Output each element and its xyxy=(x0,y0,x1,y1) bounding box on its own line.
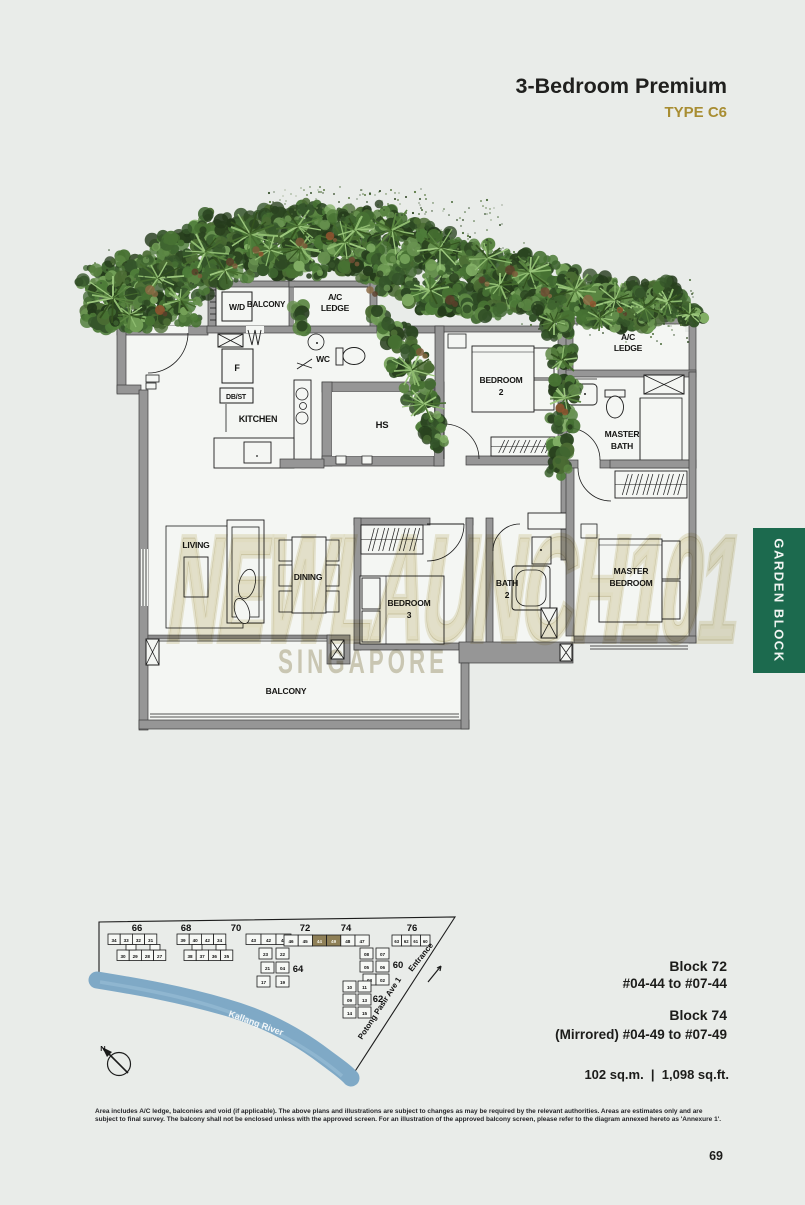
svg-text:48: 48 xyxy=(345,939,351,944)
svg-text:BALCONY: BALCONY xyxy=(266,686,307,696)
svg-text:MASTER: MASTER xyxy=(605,429,640,439)
svg-text:47: 47 xyxy=(359,939,365,944)
svg-text:27: 27 xyxy=(157,954,163,959)
svg-text:22: 22 xyxy=(280,952,286,957)
svg-text:WC: WC xyxy=(316,354,330,364)
svg-text:62: 62 xyxy=(404,939,409,944)
svg-text:05: 05 xyxy=(364,965,370,970)
svg-text:SINGAPORE: SINGAPORE xyxy=(278,643,448,681)
svg-text:36: 36 xyxy=(212,954,218,959)
svg-text:66: 66 xyxy=(132,923,143,934)
svg-text:08: 08 xyxy=(364,952,370,957)
svg-text:35: 35 xyxy=(224,954,230,959)
svg-text:40: 40 xyxy=(193,938,199,943)
svg-text:04: 04 xyxy=(280,966,286,971)
svg-text:07: 07 xyxy=(380,952,386,957)
svg-text:42: 42 xyxy=(266,938,272,943)
svg-text:BALCONY: BALCONY xyxy=(247,300,286,309)
svg-text:19: 19 xyxy=(280,980,286,985)
svg-text:74: 74 xyxy=(341,923,352,934)
svg-text:KITCHEN: KITCHEN xyxy=(239,414,278,424)
svg-text:BEDROOM: BEDROOM xyxy=(480,375,523,385)
svg-text:LEDGE: LEDGE xyxy=(321,303,350,313)
svg-text:N: N xyxy=(100,1044,105,1053)
svg-text:23: 23 xyxy=(263,952,269,957)
svg-text:HS: HS xyxy=(376,420,389,431)
svg-text:34: 34 xyxy=(217,938,223,943)
svg-text:30: 30 xyxy=(120,954,126,959)
svg-text:38: 38 xyxy=(187,954,193,959)
svg-text:63: 63 xyxy=(394,939,399,944)
svg-text:31: 31 xyxy=(148,938,154,943)
svg-text:2: 2 xyxy=(499,387,504,397)
svg-text:A/C: A/C xyxy=(328,292,342,302)
svg-text:64: 64 xyxy=(293,964,304,975)
svg-text:09: 09 xyxy=(347,998,353,1003)
svg-text:11: 11 xyxy=(362,985,367,990)
svg-text:46: 46 xyxy=(288,939,294,944)
svg-text:70: 70 xyxy=(231,923,242,934)
svg-text:17: 17 xyxy=(261,980,267,985)
svg-text:NEWLAUNCH101: NEWLAUNCH101 xyxy=(160,506,752,672)
svg-text:32: 32 xyxy=(136,938,142,943)
svg-text:BATH: BATH xyxy=(611,441,633,451)
svg-text:28: 28 xyxy=(145,954,151,959)
svg-text:10: 10 xyxy=(347,985,353,990)
svg-text:44: 44 xyxy=(317,939,323,944)
svg-text:37: 37 xyxy=(200,954,206,959)
svg-text:13: 13 xyxy=(362,998,368,1003)
svg-text:42: 42 xyxy=(205,938,211,943)
svg-text:39: 39 xyxy=(180,938,186,943)
svg-text:76: 76 xyxy=(407,923,418,934)
svg-text:45: 45 xyxy=(303,939,309,944)
svg-text:W/D: W/D xyxy=(229,302,245,312)
svg-text:33: 33 xyxy=(124,938,130,943)
svg-text:72: 72 xyxy=(300,923,311,934)
svg-text:14: 14 xyxy=(347,1011,353,1016)
svg-text:68: 68 xyxy=(181,923,192,934)
svg-text:61: 61 xyxy=(413,939,418,944)
svg-text:34: 34 xyxy=(111,938,117,943)
svg-text:29: 29 xyxy=(133,954,139,959)
svg-text:LEDGE: LEDGE xyxy=(614,343,643,353)
svg-text:21: 21 xyxy=(265,966,271,971)
svg-text:02: 02 xyxy=(380,978,386,983)
svg-text:DB/ST: DB/ST xyxy=(226,394,247,401)
svg-text:49: 49 xyxy=(331,939,337,944)
svg-text:06: 06 xyxy=(380,965,386,970)
svg-text:F: F xyxy=(234,363,240,373)
svg-text:15: 15 xyxy=(362,1011,368,1016)
svg-text:43: 43 xyxy=(251,938,257,943)
